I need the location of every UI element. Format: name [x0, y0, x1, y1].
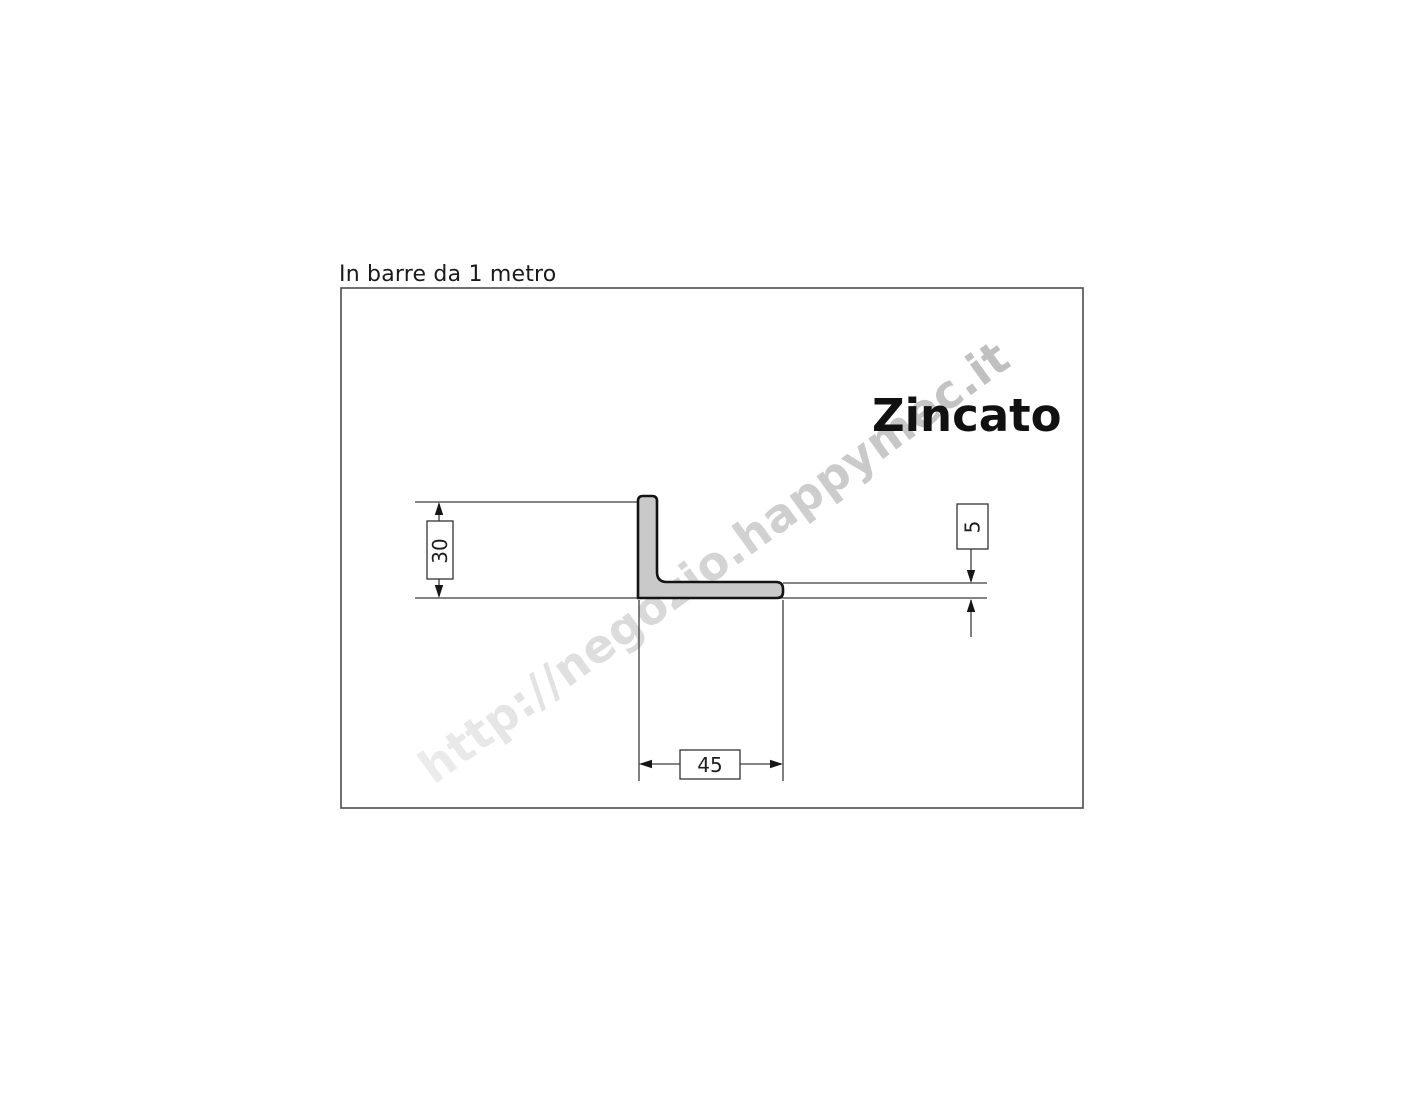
technical-drawing: 30 5 45 — [0, 0, 1422, 1100]
page: In barre da 1 metro http://negozio.happy… — [0, 0, 1422, 1100]
arrow-up-icon — [967, 599, 975, 612]
arrow-down-icon — [967, 570, 975, 583]
dimension-labels: 30 5 45 — [427, 504, 988, 779]
dimension-arrowheads — [435, 502, 975, 768]
l-profile-section — [638, 496, 783, 598]
finish-label: Zincato — [872, 393, 1062, 438]
dim-value-thickness: 5 — [961, 521, 985, 534]
arrow-up-icon — [435, 502, 443, 515]
dim-value-height: 30 — [428, 538, 452, 563]
arrow-left-icon — [639, 760, 652, 768]
extension-lines — [415, 502, 987, 781]
arrow-right-icon — [770, 760, 783, 768]
dim-value-width: 45 — [697, 753, 722, 777]
page-title: In barre da 1 metro — [339, 262, 556, 287]
arrow-down-icon — [435, 585, 443, 598]
